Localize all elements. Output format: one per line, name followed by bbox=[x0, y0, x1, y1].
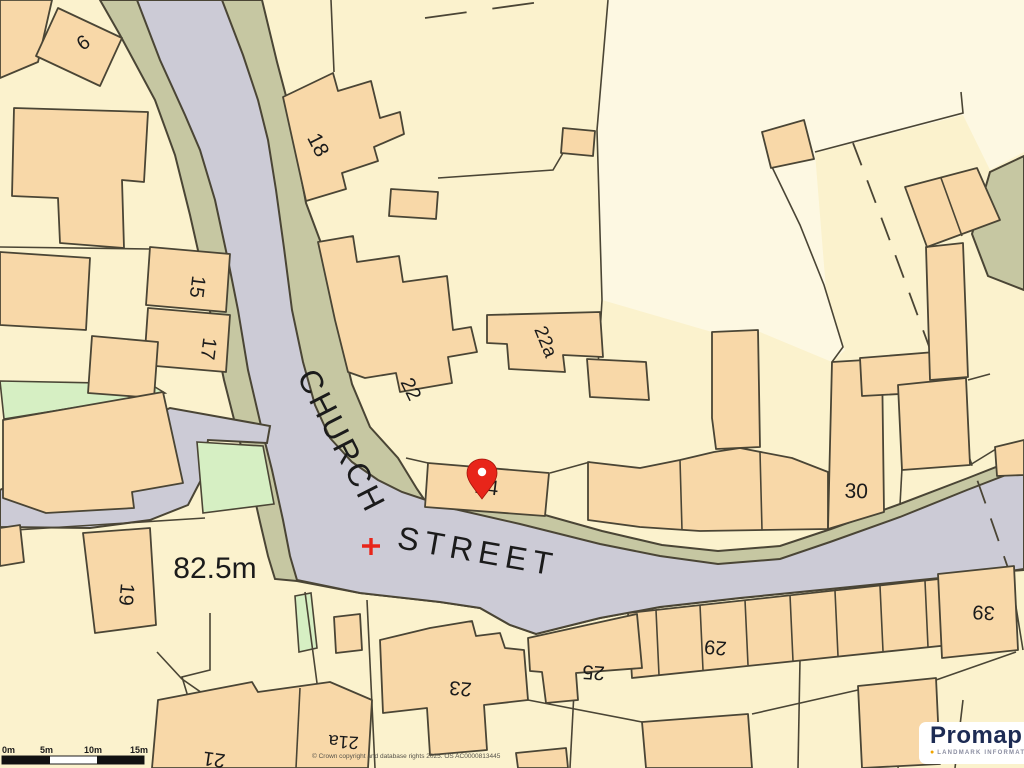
copyright-notice: © Crown copyright and database rights 20… bbox=[312, 752, 501, 760]
map-label-82.5m: 82.5m bbox=[173, 552, 256, 585]
map-label-30: 30 bbox=[844, 480, 868, 504]
scale-15m: 15m bbox=[130, 745, 148, 755]
building-19 bbox=[83, 528, 156, 633]
map-canvas[interactable]: CHURCHSTREET61815172222a24301982.5m2121a… bbox=[0, 0, 1024, 768]
map-label-23: 23 bbox=[448, 676, 472, 700]
map-viewport[interactable]: CHURCHSTREET61815172222a24301982.5m2121a… bbox=[0, 0, 1024, 768]
map-label-21a: 21a bbox=[327, 731, 359, 753]
scale-0m: 0m bbox=[2, 745, 15, 755]
promap-tagline: LANDMARK INFORMATION bbox=[937, 750, 1024, 756]
map-label-29: 29 bbox=[703, 635, 727, 659]
scale-5m: 5m bbox=[40, 745, 53, 755]
map-label-15: 15 bbox=[185, 274, 210, 299]
scale-10m: 10m bbox=[84, 745, 102, 755]
map-label-21: 21 bbox=[202, 747, 227, 768]
promap-logo: Promap ● LANDMARK INFORMATION bbox=[919, 722, 1024, 764]
map-label-17: 17 bbox=[196, 336, 221, 361]
map-label-19: 19 bbox=[114, 582, 138, 606]
map-label-39: 39 bbox=[972, 600, 995, 623]
landmark-dot-icon: ● bbox=[930, 749, 934, 756]
promap-wordmark: Promap bbox=[930, 724, 1024, 748]
map-label-25: 25 bbox=[582, 660, 606, 683]
